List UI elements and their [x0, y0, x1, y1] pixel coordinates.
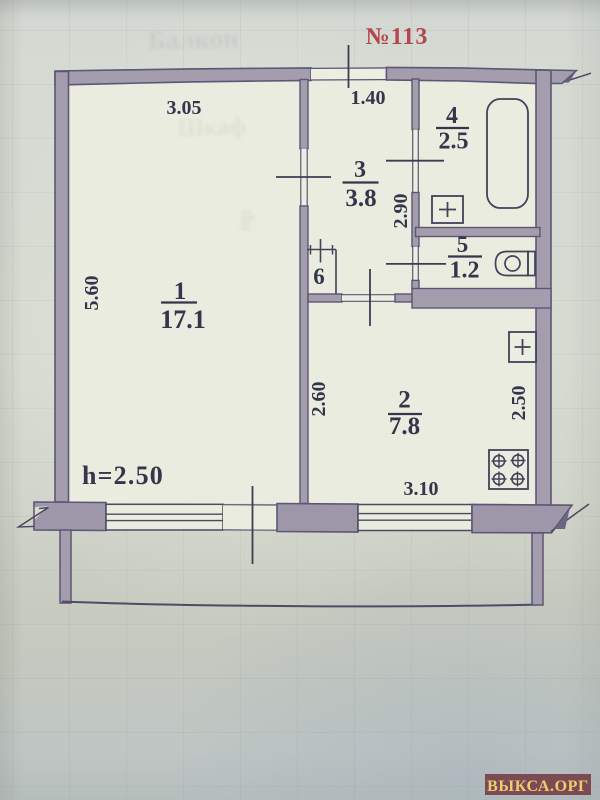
svg-text:1: 1 [174, 278, 187, 305]
svg-text:7.8: 7.8 [389, 413, 420, 440]
svg-text:2.50: 2.50 [508, 386, 530, 421]
svg-text:5: 5 [457, 232, 469, 257]
svg-text:пр: пр [233, 209, 256, 232]
svg-text:3.05: 3.05 [167, 97, 202, 119]
svg-text:2: 2 [398, 387, 411, 414]
svg-text:№113: №113 [366, 24, 429, 50]
svg-text:2.90: 2.90 [390, 194, 412, 229]
svg-text:3.8: 3.8 [345, 185, 376, 212]
svg-text:2.5: 2.5 [439, 129, 469, 155]
svg-text:Балкон: Балкон [147, 23, 239, 56]
svg-text:2.60: 2.60 [308, 382, 330, 417]
svg-text:6: 6 [313, 264, 325, 289]
svg-text:3.10: 3.10 [404, 478, 439, 500]
svg-text:17.1: 17.1 [160, 305, 206, 334]
svg-text:5.60: 5.60 [81, 276, 103, 311]
svg-text:1.40: 1.40 [351, 87, 386, 109]
svg-text:1.2: 1.2 [450, 258, 480, 284]
svg-text:ВЫКСА.ОРГ: ВЫКСА.ОРГ [487, 778, 589, 795]
svg-text:h=2.50: h=2.50 [82, 461, 164, 490]
svg-text:3: 3 [354, 157, 366, 183]
svg-text:4: 4 [446, 103, 458, 129]
